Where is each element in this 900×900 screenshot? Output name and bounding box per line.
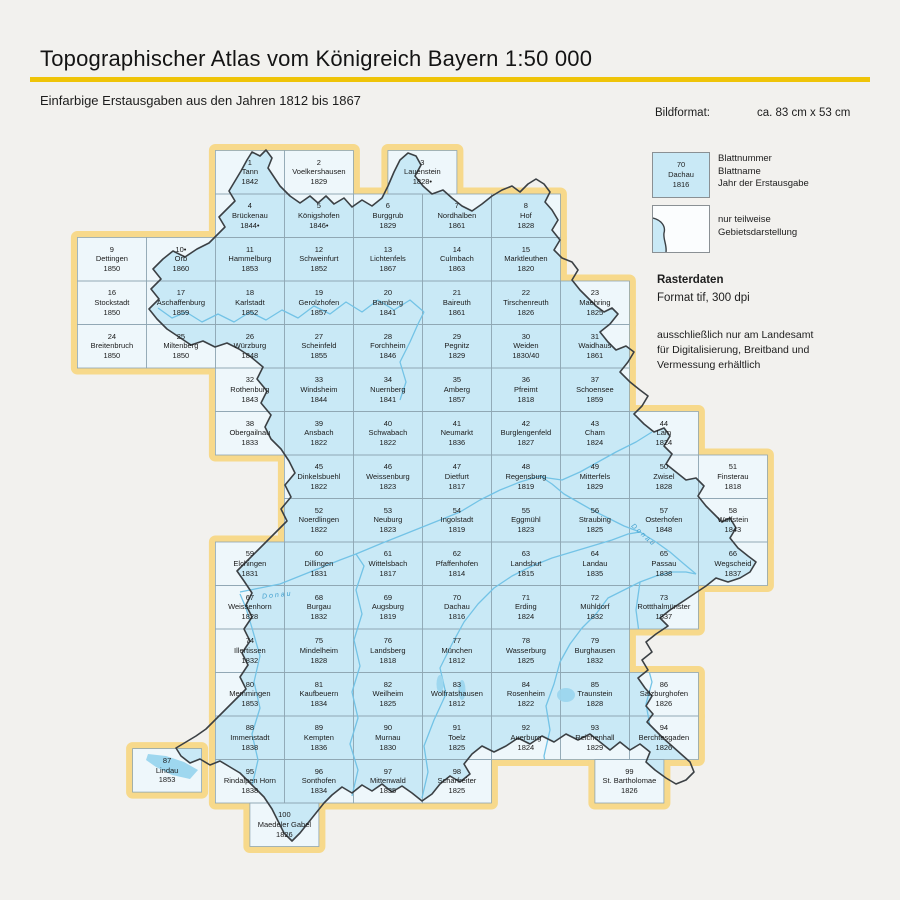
sheet-number: 56 — [591, 506, 599, 516]
map-cell-73: 73Rottthalmünster1837 — [629, 586, 698, 630]
map-cell-33: 33Windsheim1844 — [284, 368, 353, 412]
sheet-year: 1819 — [380, 612, 397, 622]
sheet-name: Finsterau — [717, 472, 748, 482]
sheet-number: 83 — [453, 680, 461, 690]
sheet-name: Waidhaus — [578, 341, 611, 351]
map-cell-48: 48Regensburg1819 — [491, 455, 560, 499]
sheet-number: 76 — [384, 636, 392, 646]
sheet-name: Wasserburg — [506, 646, 546, 656]
sheet-number: 82 — [384, 680, 392, 690]
map-cell-6: 6Burggrub1829 — [353, 194, 422, 238]
map-cell-38: 38Obergailnau1833 — [215, 412, 284, 456]
sheet-number: 39 — [315, 419, 323, 429]
sheet-year: 1853 — [242, 699, 259, 709]
sheet-number: 100 — [278, 810, 291, 820]
map-cell-7: 7Nordhalben1861 — [422, 194, 491, 238]
sheet-number: 85 — [591, 680, 599, 690]
sheet-name: Dettingen — [96, 254, 128, 264]
map-cell-88: 88Immenstadt1838 — [215, 716, 284, 760]
sheet-name: Burgau — [307, 602, 331, 612]
sheet-number: 55 — [522, 506, 530, 516]
sheet-name: Erding — [515, 602, 537, 612]
sheet-name: Baireuth — [443, 298, 471, 308]
sheet-name: Eggmühl — [511, 515, 541, 525]
sheet-name: Lichtenfels — [370, 254, 406, 264]
sheet-number: 27 — [315, 332, 323, 342]
sheet-year: 1824 — [656, 438, 673, 448]
sheet-year: 1827 — [518, 438, 535, 448]
sheet-number: 12 — [315, 245, 323, 255]
map-cell-86: 86Salzburghofen1826 — [629, 673, 698, 717]
sheet-name: Weissenhorn — [228, 602, 272, 612]
sheet-number: 57 — [660, 506, 668, 516]
map-cell-84: 84Rosenheim1822 — [491, 673, 560, 717]
sheet-number: 2 — [317, 158, 321, 168]
map-cell-76: 76Landsberg1818 — [353, 629, 422, 673]
atlas-index-page: Topographischer Atlas vom Königreich Bay… — [0, 0, 900, 900]
sheet-number: 14 — [453, 245, 461, 255]
map-cell-95: 95Rindalpen Horn1838 — [215, 760, 284, 804]
sheet-year: 1822 — [311, 525, 328, 535]
sheet-number: 8 — [524, 201, 528, 211]
sheet-name: Noerdlingen — [299, 515, 339, 525]
sheet-number: 63 — [522, 549, 530, 559]
sheet-name: Straubing — [579, 515, 611, 525]
map-cell-2: 2Voelkershausen1829 — [284, 151, 353, 195]
sheet-number: 13 — [384, 245, 392, 255]
map-cell-61: 61Wittelsbach1817 — [353, 542, 422, 586]
sheet-name: Weissenburg — [366, 472, 410, 482]
sheet-year: 1828 — [656, 482, 673, 492]
map-cell-41: 41Neumarkt1836 — [422, 412, 491, 456]
sheet-name: Rindalpen Horn — [224, 776, 276, 786]
map-cell-37: 37Schoensee1859 — [560, 368, 629, 412]
map-cell-34: 34Nuernberg1841 — [353, 368, 422, 412]
map-cell-62: 62Pfaffenhofen1814 — [422, 542, 491, 586]
map-cell-92: 92Auerburg1824 — [491, 716, 560, 760]
sheet-number: 87 — [163, 756, 171, 766]
map-cell-50: 50Zwisel1828 — [629, 455, 698, 499]
sheet-number: 49 — [591, 462, 599, 472]
sheet-name: Kaufbeuern — [299, 689, 338, 699]
map-cell-45: 45Dinkelsbuehl1822 — [284, 455, 353, 499]
map-cell-1: 1Tann1842 — [215, 151, 284, 195]
sheet-year: 1829 — [449, 351, 466, 361]
sheet-name: Auerburg — [510, 733, 541, 743]
sheet-number: 72 — [591, 593, 599, 603]
sheet-number: 35 — [453, 375, 461, 385]
sheet-name: Dinkelsbuehl — [297, 472, 340, 482]
sheet-year: 1828 — [311, 656, 328, 666]
map-cell-93: 93Reichenhall1829 — [560, 716, 629, 760]
sheet-number: 89 — [315, 723, 323, 733]
sheet-name: Traunstein — [577, 689, 612, 699]
sheet-number: 61 — [384, 549, 392, 559]
map-cell-15: 15Marktleuthen1820 — [491, 238, 560, 282]
sheet-year: 1844• — [240, 221, 259, 231]
sheet-name: Maedeler Gabel — [258, 820, 311, 830]
sheet-year: 1843 — [725, 525, 742, 535]
sheet-year: 1820 — [518, 264, 535, 274]
sheet-year: 1823 — [380, 482, 397, 492]
sheet-name: Osterhofen — [645, 515, 682, 525]
sheet-number: 81 — [315, 680, 323, 690]
map-cell-19: 19Gerolzhofen1857 — [284, 281, 353, 325]
sheet-name: Stockstadt — [94, 298, 129, 308]
sheet-name: Breitenbruch — [91, 341, 134, 351]
sheet-number: 84 — [522, 680, 530, 690]
map-cell-31: 31Waidhaus1861 — [560, 325, 629, 369]
sheet-name: Schoensee — [576, 385, 614, 395]
sheet-name: Pfaffenhofen — [436, 559, 478, 569]
map-cell-11: 11Hammelburg1853 — [215, 238, 284, 282]
sheet-year: 1850 — [104, 308, 121, 318]
map-cell-21: 21Baireuth1861 — [422, 281, 491, 325]
sheet-year: 1812 — [449, 699, 466, 709]
sheet-year: 1832 — [587, 612, 604, 622]
sheet-name: Memmingen — [229, 689, 270, 699]
sheet-number: 22 — [522, 288, 530, 298]
sheet-number: 19 — [315, 288, 323, 298]
sheet-number: 64 — [591, 549, 599, 559]
sheet-year: 1830/40 — [512, 351, 539, 361]
sheet-number: 54 — [453, 506, 461, 516]
sheet-number: 51 — [729, 462, 737, 472]
sheet-number: 11 — [246, 245, 254, 255]
map-cell-60: 60Dillingen1831 — [284, 542, 353, 586]
sheet-name: Würzburg — [234, 341, 267, 351]
sheet-name: Weilheim — [373, 689, 404, 699]
sheet-year: 1832 — [587, 656, 604, 666]
map-cell-14: 14Culmbach1863 — [422, 238, 491, 282]
sheet-number: 41 — [453, 419, 461, 429]
sheet-number: 69 — [384, 593, 392, 603]
sheet-year: 1822 — [518, 699, 535, 709]
sheet-year: 1826 — [656, 699, 673, 709]
map-cell-4: 4Brückenau1844• — [215, 194, 284, 238]
sheet-name: Salzburghofen — [640, 689, 688, 699]
map-cell-94: 94Berchtesgaden1826 — [629, 716, 698, 760]
sheet-name: Mittenwald — [370, 776, 406, 786]
sheet-number: 68 — [315, 593, 323, 603]
map-cell-39: 39Ansbach1822 — [284, 412, 353, 456]
map-cell-30: 30Weiden1830/40 — [491, 325, 560, 369]
sheet-name: Wegscheid — [714, 559, 751, 569]
sheet-number: 86 — [660, 680, 668, 690]
sheet-year: 1825 — [449, 743, 466, 753]
map-cell-77: 77München1812 — [422, 629, 491, 673]
sheet-name: St. Bartholomae — [603, 776, 657, 786]
sheet-number: 30 — [522, 332, 530, 342]
map-cell-85: 85Traunstein1828 — [560, 673, 629, 717]
sheet-name: Königshofen — [298, 211, 340, 221]
sheet-name: Obergailnau — [229, 428, 270, 438]
sheet-year: 1837 — [656, 612, 673, 622]
sheet-number: 7 — [455, 201, 459, 211]
sheet-name: Schwabach — [369, 428, 408, 438]
sheet-year: 1867 — [380, 264, 397, 274]
sheet-year: 1825 — [380, 699, 397, 709]
sheet-year: 1817 — [380, 569, 397, 579]
map-cell-44: 44Lam1824 — [629, 412, 698, 456]
sheet-number: 28 — [384, 332, 392, 342]
map-cell-13: 13Lichtenfels1867 — [353, 238, 422, 282]
sheet-number: 18 — [246, 288, 254, 298]
sheet-year: 1850 — [173, 351, 190, 361]
sheet-name: Wittelsbach — [369, 559, 408, 569]
map-cell-90: 90Murnau1830 — [353, 716, 422, 760]
sheet-name: Cham — [585, 428, 605, 438]
sheet-year: 1863 — [449, 264, 466, 274]
sheet-number: 91 — [453, 723, 461, 733]
sheet-number: 93 — [591, 723, 599, 733]
sheet-name: Maehring — [579, 298, 610, 308]
sheet-number: 17 — [177, 288, 185, 298]
map-cell-82: 82Weilheim1825 — [353, 673, 422, 717]
sheet-year: 1852 — [311, 264, 328, 274]
map-cell-66: 66Wegscheid1837 — [698, 542, 767, 586]
sheet-number: 70 — [453, 593, 461, 603]
map-cell-40: 40Schwabach1822 — [353, 412, 422, 456]
sheet-number: 94 — [660, 723, 668, 733]
sheet-number: 99 — [625, 767, 633, 777]
sheet-year: 1819 — [518, 482, 535, 492]
sheet-name: Ingolstadt — [441, 515, 474, 525]
sheet-year: 1824 — [587, 438, 604, 448]
map-cell-71: 71Erding1824 — [491, 586, 560, 630]
sheet-index-map: 1Tann18422Voelkershausen18293Lauenstein1… — [0, 0, 900, 900]
map-cell-63: 63Landshut1815 — [491, 542, 560, 586]
sheet-number: 65 — [660, 549, 668, 559]
map-cell-20: 20Bamberg1841 — [353, 281, 422, 325]
map-cell-5: 5Königshofen1846• — [284, 194, 353, 238]
sheet-name: Dillingen — [305, 559, 334, 569]
sheet-number: 23 — [591, 288, 599, 298]
sheet-number: 88 — [246, 723, 254, 733]
sheet-number: 34 — [384, 375, 392, 385]
map-cell-72: 72Mühldorf1832 — [560, 586, 629, 630]
sheet-name: Lindau — [156, 766, 179, 776]
sheet-number: 10• — [175, 245, 186, 255]
sheet-name: Sonthofen — [302, 776, 336, 786]
sheet-name: Weiden — [513, 341, 538, 351]
sheet-year: 1828 — [518, 221, 535, 231]
sheet-number: 31 — [591, 332, 599, 342]
sheet-number: 52 — [315, 506, 323, 516]
sheet-name: Marktleuthen — [504, 254, 547, 264]
sheet-year: 1850 — [104, 264, 121, 274]
sheet-number: 92 — [522, 723, 530, 733]
sheet-year: 1859 — [173, 308, 190, 318]
sheet-year: 1825 — [587, 525, 604, 535]
sheet-number: 20 — [384, 288, 392, 298]
map-cell-99: 99St. Bartholomae1826 — [595, 760, 664, 804]
sheet-year: 1826 — [518, 308, 535, 318]
sheet-year: 1824 — [518, 743, 535, 753]
sheet-year: 1836 — [311, 743, 328, 753]
sheet-name: Ansbach — [304, 428, 333, 438]
sheet-number: 77 — [453, 636, 461, 646]
sheet-number: 60 — [315, 549, 323, 559]
sheet-name: Tann — [242, 167, 258, 177]
sheet-name: Toelz — [448, 733, 466, 743]
map-cell-78: 78Wasserburg1825 — [491, 629, 560, 673]
sheet-year: 1855 — [311, 351, 328, 361]
sheet-year: 1843 — [242, 395, 259, 405]
map-cell-49: 49Mitterfels1829 — [560, 455, 629, 499]
sheet-year: 1837 — [725, 569, 742, 579]
sheet-name: Windsheim — [300, 385, 337, 395]
sheet-year: 1832 — [311, 612, 328, 622]
sheet-name: Wolfstein — [718, 515, 749, 525]
sheet-number: 29 — [453, 332, 461, 342]
sheet-year: 1828 — [242, 612, 259, 622]
sheet-year: 1861 — [449, 308, 466, 318]
sheet-number: 37 — [591, 375, 599, 385]
sheet-number: 38 — [246, 419, 254, 429]
map-cell-23: 23Maehring1825 — [560, 281, 629, 325]
sheet-number: 25 — [177, 332, 185, 342]
sheet-name: Amberg — [444, 385, 470, 395]
sheet-number: 6 — [386, 201, 390, 211]
sheet-number: 98 — [453, 767, 461, 777]
sheet-number: 62 — [453, 549, 461, 559]
sheet-name: Wolfratshausen — [431, 689, 483, 699]
map-cell-27: 27Scheinfeld1855 — [284, 325, 353, 369]
map-cell-16: 16Stockstadt1850 — [77, 281, 146, 325]
sheet-name: Murnau — [375, 733, 400, 743]
sheet-name: Burggrub — [372, 211, 403, 221]
sheet-name: Miltenberg — [163, 341, 198, 351]
sheet-number: 97 — [384, 767, 392, 777]
sheet-year: 1832 — [242, 656, 259, 666]
map-cell-18: 18Karlstadt1852 — [215, 281, 284, 325]
sheet-year: 1852 — [242, 308, 259, 318]
map-cell-98: 98Scharfreiter1825 — [422, 760, 491, 804]
sheet-year: 1825 — [587, 308, 604, 318]
map-cell-56: 56Straubing1825 — [560, 499, 629, 543]
sheet-year: 1836 — [449, 438, 466, 448]
map-cell-26: 26Würzburg1848 — [215, 325, 284, 369]
map-cell-83: 83Wolfratshausen1812 — [422, 673, 491, 717]
sheet-year: 1829 — [380, 221, 397, 231]
sheet-number: 40 — [384, 419, 392, 429]
map-cell-47: 47Dietfurt1817 — [422, 455, 491, 499]
sheet-name: Berchtesgaden — [639, 733, 689, 743]
sheet-name: Rothenburg — [230, 385, 269, 395]
sheet-name: Passau — [651, 559, 676, 569]
map-cell-43: 43Cham1824 — [560, 412, 629, 456]
map-cell-17: 17Aschaffenburg1859 — [146, 281, 215, 325]
sheet-name: Landsberg — [370, 646, 405, 656]
sheet-year: 1826 — [656, 743, 673, 753]
sheet-year: 1816 — [449, 612, 466, 622]
map-cell-12: 12Schweinfurt1852 — [284, 238, 353, 282]
sheet-year: 1829 — [587, 743, 604, 753]
sheet-name: Landshut — [510, 559, 541, 569]
sheet-number: 74 — [246, 636, 254, 646]
sheet-year: 1834 — [311, 699, 328, 709]
sheet-year: 1818 — [518, 395, 535, 405]
sheet-name: Voelkershausen — [292, 167, 345, 177]
sheet-year: 1831 — [311, 569, 328, 579]
sheet-name: Tirschenreuth — [503, 298, 549, 308]
sheet-year: 1848 — [656, 525, 673, 535]
sheet-name: Rosenheim — [507, 689, 545, 699]
sheet-year: 1841 — [380, 308, 397, 318]
sheet-year: 1835 — [380, 786, 397, 796]
sheet-year: 1815 — [518, 569, 535, 579]
sheet-number: 75 — [315, 636, 323, 646]
sheet-year: 1812 — [449, 656, 466, 666]
sheet-year: 1829 — [311, 177, 328, 187]
sheet-year: 1853 — [159, 775, 176, 785]
sheet-name: Reichenhall — [575, 733, 614, 743]
sheet-year: 1823 — [518, 525, 535, 535]
sheet-name: Gerolzhofen — [298, 298, 339, 308]
sheet-year: 1826 — [621, 786, 638, 796]
sheet-name: Bamberg — [373, 298, 403, 308]
sheet-name: Illertissen — [234, 646, 266, 656]
map-cell-69: 69Augsburg1819 — [353, 586, 422, 630]
sheet-name: Pegnitz — [444, 341, 469, 351]
map-cell-75: 75Mindelheim1828 — [284, 629, 353, 673]
sheet-name: Mühldorf — [580, 602, 609, 612]
sheet-year: 1828 — [587, 699, 604, 709]
sheet-year: 1831 — [242, 569, 259, 579]
map-cell-46: 46Weissenburg1823 — [353, 455, 422, 499]
sheet-number: 58 — [729, 506, 737, 516]
sheet-year: 1830 — [380, 743, 397, 753]
sheet-year: 1857 — [449, 395, 466, 405]
map-cell-9: 9Dettingen1850 — [77, 238, 146, 282]
map-cell-68: 68Burgau1832 — [284, 586, 353, 630]
sheet-year: 1819 — [449, 525, 466, 535]
sheet-year: 1850 — [104, 351, 121, 361]
map-cell-79: 79Burghausen1832 — [560, 629, 629, 673]
sheet-year: 1838 — [242, 786, 259, 796]
sheet-name: Dietfurt — [445, 472, 469, 482]
sheet-number: 32 — [246, 375, 254, 385]
sheet-year: 1823 — [380, 525, 397, 535]
sheet-number: 96 — [315, 767, 323, 777]
sheet-year: 1817 — [449, 482, 466, 492]
sheet-year: 1860 — [173, 264, 190, 274]
sheet-number: 50 — [660, 462, 668, 472]
sheet-year: 1818 — [380, 656, 397, 666]
map-cell-10: 10•Orb1860 — [146, 238, 215, 282]
sheet-number: 53 — [384, 506, 392, 516]
sheet-name: Scharfreiter — [438, 776, 477, 786]
sheet-year: 1834 — [311, 786, 328, 796]
sheet-year: 1826 — [276, 830, 293, 840]
map-cell-28: 28Forchheim1846 — [353, 325, 422, 369]
sheet-name: Hof — [520, 211, 532, 221]
sheet-name: Nordhalben — [438, 211, 477, 221]
sheet-year: 1846• — [309, 221, 328, 231]
sheet-number: 5 — [317, 201, 321, 211]
map-cell-100: 100Maedeler Gabel1826 — [250, 803, 319, 847]
map-cell-70: 70Dachau1816 — [422, 586, 491, 630]
sheet-name: Neumarkt — [441, 428, 474, 438]
sheet-name: Aschaffenburg — [157, 298, 205, 308]
sheet-year: 1835 — [587, 569, 604, 579]
sheet-name: Lauenstein — [404, 167, 441, 177]
sheet-name: München — [441, 646, 472, 656]
sheet-name: Elchingen — [233, 559, 266, 569]
map-cell-96: 96Sonthofen1834 — [284, 760, 353, 804]
sheet-name: Kempten — [304, 733, 334, 743]
